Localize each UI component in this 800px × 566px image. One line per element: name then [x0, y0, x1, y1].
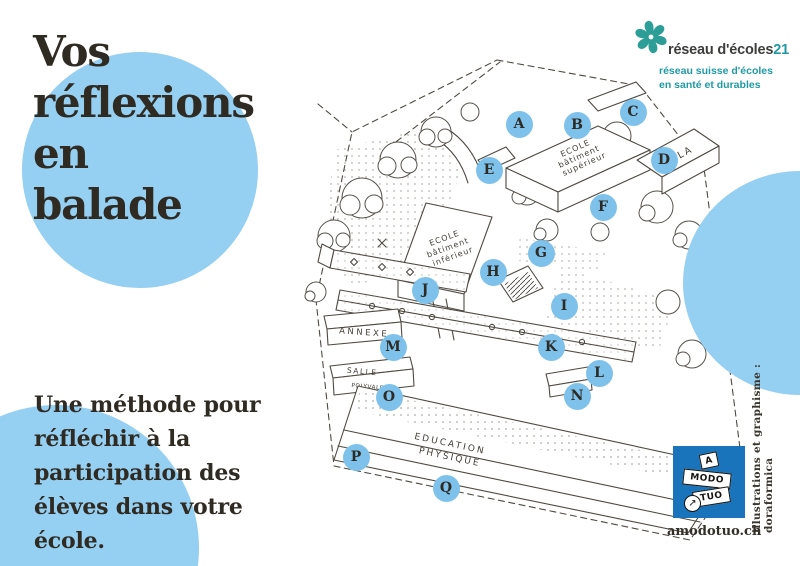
- amodotuo-logo-mark: A MODO TUO ↗: [673, 446, 745, 518]
- credit-text: illustrations et graphisme : doraformica: [751, 333, 775, 533]
- logo-word-a: A: [699, 451, 720, 469]
- map-marker-n[interactable]: N: [564, 383, 591, 410]
- map-marker-m[interactable]: M: [380, 334, 407, 361]
- website-link[interactable]: amodotuo.ch: [667, 524, 751, 539]
- map-marker-k[interactable]: K: [538, 334, 565, 361]
- poster-page: ECOLE bâtiment supérieur AULA ECOLE bâti…: [0, 0, 800, 566]
- map-marker-d[interactable]: D: [651, 147, 678, 174]
- title-line: en: [33, 128, 254, 179]
- map-marker-h[interactable]: H: [480, 259, 507, 286]
- title-line: réflexions: [33, 77, 254, 128]
- map-marker-j[interactable]: J: [412, 277, 439, 304]
- map-marker-p[interactable]: P: [343, 444, 370, 471]
- brand-wordmark: réseau d'écoles21: [668, 42, 789, 58]
- map-marker-c[interactable]: C: [620, 99, 647, 126]
- swirl-rose-icon: [634, 20, 668, 54]
- amodotuo-logo: A MODO TUO ↗ amodotuo.ch: [667, 446, 751, 539]
- map-marker-o[interactable]: O: [376, 384, 403, 411]
- subtitle-line: participation des: [34, 456, 260, 490]
- brand-logo: réseau d'écoles21 réseau suisse d'écoles…: [630, 16, 790, 92]
- subtitle-line: Une méthode pour: [34, 388, 260, 422]
- map-marker-i[interactable]: I: [551, 293, 578, 320]
- poster-subtitle: Une méthode pour réfléchir à la particip…: [34, 388, 260, 558]
- arrow-icon: ↗: [684, 495, 701, 512]
- brand-wordmark-suffix: 21: [773, 42, 789, 58]
- map-marker-b[interactable]: B: [564, 112, 591, 139]
- map-marker-e[interactable]: E: [476, 157, 503, 184]
- subtitle-line: école.: [34, 524, 260, 558]
- map-marker-l[interactable]: L: [586, 360, 613, 387]
- title-line: balade: [33, 179, 254, 230]
- poster-title: Vos réflexions en balade: [33, 26, 254, 230]
- map-marker-g[interactable]: G: [528, 240, 555, 267]
- brand-tagline: réseau suisse d'écoles en santé et durab…: [659, 65, 773, 92]
- title-line: Vos: [33, 26, 254, 77]
- subtitle-line: élèves dans votre: [34, 490, 260, 524]
- map-marker-a[interactable]: A: [506, 111, 533, 138]
- map-marker-q[interactable]: Q: [433, 475, 460, 502]
- map-marker-f[interactable]: F: [590, 194, 617, 221]
- subtitle-line: réfléchir à la: [34, 422, 260, 456]
